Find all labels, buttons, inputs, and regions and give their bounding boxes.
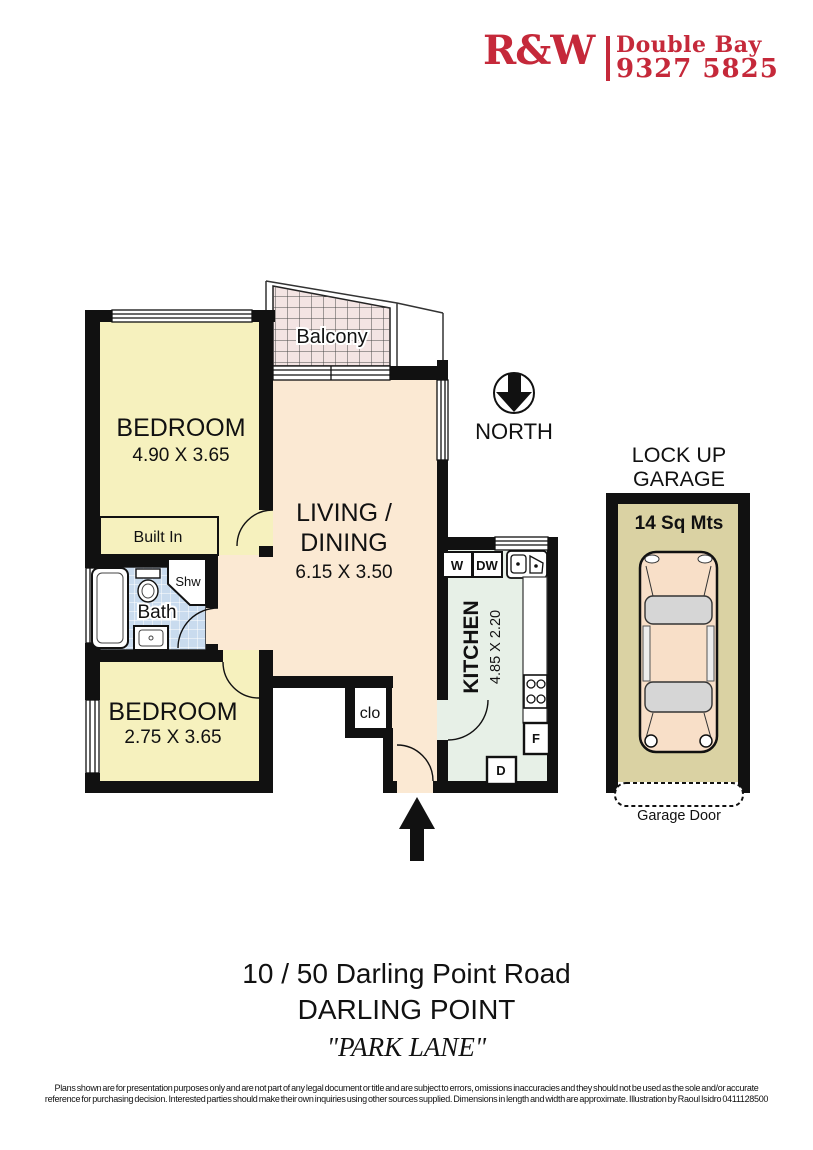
- entry-arrow-icon: [399, 797, 435, 861]
- built-in-label: Built In: [134, 529, 183, 546]
- north-label: NORTH: [475, 419, 553, 444]
- garage-title-2: GARAGE: [633, 467, 725, 491]
- dryer-label: D: [496, 763, 505, 778]
- disclaimer-line-1: Plans shown are for presentation purpose…: [0, 1083, 813, 1094]
- north-arrow-shaft: [508, 374, 521, 394]
- garage-door: [615, 783, 743, 806]
- floorplan-page: R&W Double Bay 9327 5825: [0, 0, 813, 1150]
- bath-label: Bath: [137, 602, 176, 623]
- bedroom1-label: BEDROOM: [116, 414, 245, 442]
- floor-plan: Balcony: [0, 0, 813, 900]
- balcony-label: Balcony: [296, 326, 367, 348]
- living-label-2: DINING: [300, 529, 388, 557]
- car-icon: [640, 552, 717, 752]
- bedroom2-window: [86, 700, 99, 773]
- shower-label: Shw: [175, 574, 201, 589]
- toilet-tank: [136, 569, 160, 578]
- kitchen-window: [495, 537, 548, 550]
- garage-title-1: LOCK UP: [632, 443, 726, 467]
- garage-area: 14 Sq Mts: [635, 513, 724, 534]
- north-compass: NORTH: [475, 373, 553, 444]
- built-in-wardrobe: Built In: [100, 517, 218, 555]
- closet-label: clo: [360, 705, 381, 722]
- living-window: [437, 380, 448, 460]
- dishwasher-label: DW: [476, 558, 498, 573]
- address-line-1: 10 / 50 Darling Point Road: [0, 958, 813, 990]
- kitchen-dims: 4.85 X 2.20: [488, 610, 504, 684]
- fridge-label: F: [532, 731, 540, 746]
- stove: [524, 675, 547, 708]
- balcony: Balcony: [266, 281, 443, 366]
- address-line-2: DARLING POINT: [0, 994, 813, 1026]
- disclaimer-line-2: reference for purchasing decision. Inter…: [0, 1094, 813, 1105]
- living-dims: 6.15 X 3.50: [295, 562, 392, 583]
- bedroom2-label: BEDROOM: [108, 698, 237, 726]
- kitchen-label: KITCHEN: [460, 600, 483, 693]
- toilet-bowl: [138, 580, 158, 602]
- garage-door-label: Garage Door: [637, 808, 721, 824]
- bedroom1-window: [112, 310, 252, 322]
- bedroom2-dims: 2.75 X 3.65: [124, 727, 221, 748]
- garage: LOCK UP GARAGE 14 Sq Mts: [606, 443, 750, 824]
- bedroom1-dims: 4.90 X 3.65: [132, 445, 229, 466]
- building-name: "PARK LANE": [0, 1032, 813, 1063]
- disclaimer: Plans shown are for presentation purpose…: [0, 1083, 813, 1104]
- washer-label: W: [451, 558, 464, 573]
- living-label-1: LIVING /: [296, 499, 392, 527]
